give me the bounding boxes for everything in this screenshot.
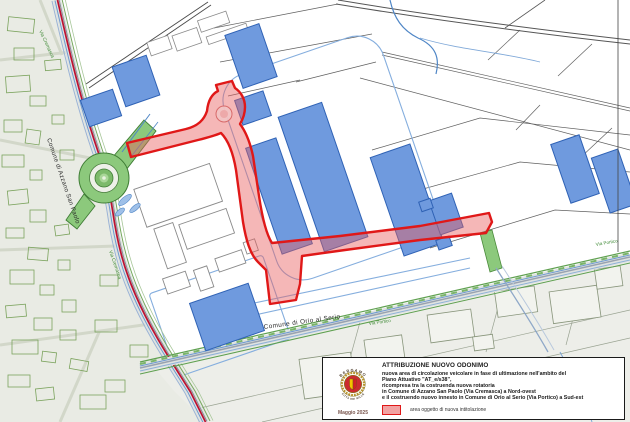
legend-line-5: e il costruendo nuovo innesto in Comune … (382, 395, 620, 401)
project-area-swatch-label: area oggetto di nuova intitolazione (410, 407, 486, 413)
legend-text-column: ATTRIBUZIONE NUOVO ODONIMO nuova area di… (379, 360, 620, 417)
legend-box: BERGAMO CITTÀ DEI MILLE Maggio 2025 ATTR… (322, 357, 625, 420)
legend-title: ATTRIBUZIONE NUOVO ODONIMO (382, 362, 620, 369)
legend-date: Maggio 2025 (338, 410, 368, 416)
new-roundabout-center (220, 110, 228, 118)
legend-key-row: area oggetto di nuova intitolazione (382, 405, 620, 415)
project-area-swatch (382, 405, 401, 415)
legend-logo-column: BERGAMO CITTÀ DEI MILLE Maggio 2025 (327, 360, 379, 417)
map-sheet: Comune di Azzano San Paolo Comune di Ori… (0, 0, 630, 422)
bergamo-logo: BERGAMO CITTÀ DEI MILLE (332, 361, 374, 407)
